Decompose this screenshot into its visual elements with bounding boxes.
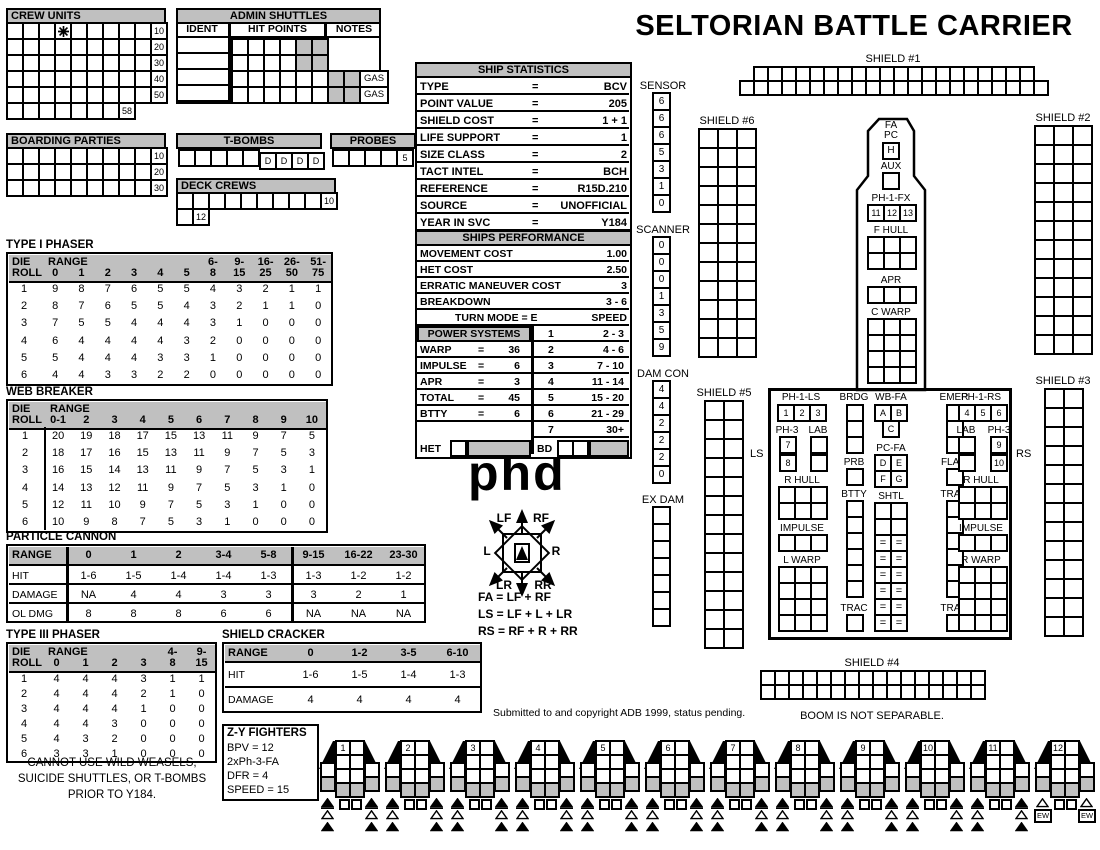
shield-3-box[interactable] xyxy=(1044,597,1065,618)
shield-3-box[interactable] xyxy=(1063,578,1084,599)
shield-6-box[interactable] xyxy=(717,204,738,225)
shield-6-box[interactable] xyxy=(698,337,719,358)
shield-5-box[interactable] xyxy=(723,419,744,440)
shield-2-box[interactable] xyxy=(1034,258,1055,279)
shield-2-box[interactable] xyxy=(1072,315,1093,336)
type3-phaser-value: 0 xyxy=(198,749,204,760)
shield-6-box[interactable] xyxy=(736,318,757,339)
type1-phaser-value: 0 xyxy=(289,318,295,329)
ph-1-fx-box[interactable]: 13 xyxy=(899,204,917,222)
shield-2-box[interactable] xyxy=(1072,239,1093,260)
r-warp-box[interactable] xyxy=(990,614,1008,632)
equals-sign: = xyxy=(532,133,538,144)
fighter-ready-box[interactable] xyxy=(676,799,687,810)
shield-6-box[interactable] xyxy=(717,337,738,358)
shield-5-box[interactable] xyxy=(704,609,725,630)
equals-sign: = xyxy=(478,377,484,388)
shield-5-box[interactable] xyxy=(723,590,744,611)
crew-count-box[interactable]: 58 xyxy=(118,102,136,120)
shield-3-box[interactable] xyxy=(1063,502,1084,523)
shield-6-box[interactable] xyxy=(717,280,738,301)
shield-3-box[interactable] xyxy=(1044,521,1065,542)
shuttle-note-box[interactable]: GAS xyxy=(359,86,389,104)
shield-6-box[interactable] xyxy=(698,242,719,263)
shield-3-box[interactable] xyxy=(1044,464,1065,485)
r-hull-box[interactable] xyxy=(810,502,828,520)
fighter-ready-box[interactable] xyxy=(664,799,675,810)
fighter-wing-box[interactable] xyxy=(385,776,401,792)
shield-6-box[interactable] xyxy=(698,223,719,244)
shield-3-box[interactable] xyxy=(1063,559,1084,580)
web-breaker-value: 8 xyxy=(111,517,117,528)
impulse-box[interactable] xyxy=(990,534,1008,552)
shield-6-box[interactable] xyxy=(736,242,757,263)
speed-turnmode: 5 xyxy=(548,393,554,404)
shield-3-box[interactable] xyxy=(1044,483,1065,504)
sc-row-label: DAMAGE xyxy=(228,695,274,706)
shield-2-box[interactable] xyxy=(1034,182,1055,203)
btty-box[interactable] xyxy=(846,580,864,598)
lab-box[interactable] xyxy=(810,436,828,454)
shield-5-box[interactable] xyxy=(704,514,725,535)
apr-box[interactable] xyxy=(899,286,917,304)
trac-box[interactable] xyxy=(846,614,864,632)
type1-phaser-value: 5 xyxy=(184,284,190,295)
shield-5-box[interactable] xyxy=(723,457,744,478)
lab-box[interactable] xyxy=(810,454,828,472)
fighter-hit-box[interactable] xyxy=(349,782,365,798)
shield-2-box[interactable] xyxy=(1034,220,1055,241)
shield-5-box[interactable] xyxy=(723,495,744,516)
web-breaker-value: 9 xyxy=(196,465,202,476)
admin-ident-cell[interactable] xyxy=(176,86,231,102)
shield-2-box[interactable] xyxy=(1053,163,1074,184)
shield-6-box[interactable] xyxy=(698,147,719,168)
pc-value: NA xyxy=(396,609,411,620)
fighter-hit-box[interactable] xyxy=(544,782,560,798)
shield-6-box[interactable] xyxy=(717,261,738,282)
fighter-wing-box[interactable] xyxy=(754,776,770,792)
shield-3-box[interactable] xyxy=(1063,407,1084,428)
het-box[interactable] xyxy=(450,440,467,457)
fighter-wing-box[interactable] xyxy=(775,776,791,792)
fighter-wing-box[interactable] xyxy=(1035,776,1051,792)
r-hull-box[interactable] xyxy=(990,502,1008,520)
boom-pc-label: PC xyxy=(884,131,898,141)
fighter-ready-box[interactable] xyxy=(534,799,545,810)
ph-3-box[interactable]: 10 xyxy=(990,454,1008,472)
fighter-hit-box[interactable] xyxy=(999,782,1015,798)
shield-2-box[interactable] xyxy=(1072,125,1093,146)
shield-5-box[interactable] xyxy=(704,476,725,497)
shield-2-box[interactable] xyxy=(1034,239,1055,260)
shield-3-box[interactable] xyxy=(1044,426,1065,447)
ph-1-rs-box[interactable]: 6 xyxy=(990,404,1008,422)
fighter-wing-box[interactable] xyxy=(494,776,510,792)
ex-dam-box[interactable] xyxy=(652,608,671,627)
shield-5-box[interactable] xyxy=(723,400,744,421)
wb-fa-box[interactable]: C xyxy=(882,420,900,438)
shield-6-box[interactable] xyxy=(736,299,757,320)
impulse-box[interactable] xyxy=(810,534,828,552)
shield-5-box[interactable] xyxy=(723,628,744,649)
dam-con-box[interactable]: 0 xyxy=(652,465,671,484)
range-col-label: 2 xyxy=(105,268,111,279)
admin-ident-cell[interactable] xyxy=(176,70,231,86)
fighter-ready-box[interactable] xyxy=(1054,799,1065,810)
shield-6-box[interactable] xyxy=(717,242,738,263)
bd-box[interactable] xyxy=(572,440,589,457)
range-col-label: 9 xyxy=(281,415,287,426)
fighter-ready-box[interactable] xyxy=(339,799,350,810)
shield-2-box[interactable] xyxy=(1053,277,1074,298)
ph-3-box[interactable]: 7 xyxy=(779,436,797,454)
power-label: WARP xyxy=(420,345,452,356)
web-breaker-value: 15 xyxy=(80,465,92,476)
shield-3-box[interactable] xyxy=(1044,616,1065,637)
shield-2-box[interactable] xyxy=(1034,163,1055,184)
shield-5-box[interactable] xyxy=(704,552,725,573)
shield-2-box[interactable] xyxy=(1072,144,1093,165)
t-bomb-d-box[interactable]: D xyxy=(307,152,325,170)
shield-5-box[interactable] xyxy=(723,476,744,497)
shield-cracker-title: SHIELD CRACKER xyxy=(222,630,325,642)
speed-col-header: SPEED xyxy=(591,313,627,324)
fighter-ready-box[interactable] xyxy=(741,799,752,810)
shield-6-box[interactable] xyxy=(717,166,738,187)
fighter-drone-icon xyxy=(841,820,854,838)
shield-6-box[interactable] xyxy=(717,299,738,320)
type1-phaser-value: 4 xyxy=(78,353,84,364)
fighter-ready-box[interactable] xyxy=(611,799,622,810)
shield-6-box[interactable] xyxy=(717,147,738,168)
f-hull-box[interactable] xyxy=(899,252,917,270)
fighter-hit-box[interactable] xyxy=(674,782,690,798)
fighter-wing-box[interactable] xyxy=(515,776,531,792)
zy-fighters-line: SPEED = 15 xyxy=(227,785,289,796)
shield-5-box[interactable] xyxy=(704,628,725,649)
shield-2-box[interactable] xyxy=(1034,334,1055,355)
ph-3-box[interactable]: 9 xyxy=(990,436,1008,454)
fighter-wing-box[interactable] xyxy=(429,776,445,792)
power-label: BTTY xyxy=(420,409,447,420)
fighter-wing-box[interactable] xyxy=(645,776,661,792)
fighter-hit-box[interactable] xyxy=(739,782,755,798)
shield-6-box[interactable] xyxy=(736,204,757,225)
shield-3-box[interactable] xyxy=(1044,559,1065,580)
fighter-wing-box[interactable] xyxy=(450,776,466,792)
fighter-ready-box[interactable] xyxy=(859,799,870,810)
shield-6-box[interactable] xyxy=(736,185,757,206)
fighter-ready-box[interactable] xyxy=(1001,799,1012,810)
shield-2-box[interactable] xyxy=(1053,125,1074,146)
scanner-box[interactable]: 9 xyxy=(652,338,671,357)
zy-fighters-title: Z-Y FIGHTERS xyxy=(227,728,307,740)
shield-5-box[interactable] xyxy=(704,400,725,421)
shield-2-box[interactable] xyxy=(1034,277,1055,298)
range-col-label: 0 xyxy=(53,658,59,669)
shield-6-box[interactable] xyxy=(698,204,719,225)
fighter-ew-box[interactable]: EW xyxy=(1034,809,1052,823)
bd-label: BD xyxy=(537,444,552,455)
deck-crew-count-box[interactable]: 12 xyxy=(192,208,210,226)
shield-2-box[interactable] xyxy=(1053,315,1074,336)
fighter-wing-box[interactable] xyxy=(559,776,575,792)
shield-2-box[interactable] xyxy=(1053,182,1074,203)
type1-phaser-value: 0 xyxy=(289,336,295,347)
fighter-wing-box[interactable] xyxy=(1079,776,1095,792)
shield-3-box[interactable] xyxy=(1063,426,1084,447)
fighter-wing-box[interactable] xyxy=(949,776,965,792)
fighter-wing-box[interactable] xyxy=(580,776,596,792)
shield-2-box[interactable] xyxy=(1072,182,1093,203)
shield-3-box[interactable] xyxy=(1063,597,1084,618)
sensor-box[interactable]: 0 xyxy=(652,194,671,213)
type3-phaser-value: 0 xyxy=(140,734,146,745)
die-roll-value: 5 xyxy=(21,353,27,364)
fighter-hit-box[interactable] xyxy=(1064,782,1080,798)
shield-5-box[interactable] xyxy=(704,571,725,592)
fighter-hit-box[interactable] xyxy=(869,782,885,798)
shield-2-box[interactable] xyxy=(1072,220,1093,241)
shield-3-box[interactable] xyxy=(1063,521,1084,542)
web-breaker-value: 7 xyxy=(281,431,287,442)
fighter-wing-box[interactable] xyxy=(624,776,640,792)
restriction-note: SUICIDE SHUTTLES, OR T-BOMBS xyxy=(18,774,206,786)
shield-2-box[interactable] xyxy=(1053,144,1074,165)
shield-2-box[interactable] xyxy=(1034,125,1055,146)
fighter-ready-box[interactable] xyxy=(404,799,415,810)
shield-2-box[interactable] xyxy=(1053,296,1074,317)
fighter-ready-box[interactable] xyxy=(481,799,492,810)
fighter-drone-icon xyxy=(971,820,984,838)
fighter-ready-box[interactable] xyxy=(1066,799,1077,810)
shield-6-box[interactable] xyxy=(717,185,738,206)
type1-phaser-value: 0 xyxy=(262,318,268,329)
aux-box[interactable] xyxy=(882,172,900,190)
shield-3-box[interactable] xyxy=(1044,540,1065,561)
shield-5-box[interactable] xyxy=(723,514,744,535)
fighter-ready-box[interactable] xyxy=(794,799,805,810)
c-warp-box[interactable] xyxy=(899,366,917,384)
fighter-wing-box[interactable] xyxy=(320,776,336,792)
stat-value: R15D.210 xyxy=(577,184,627,195)
type1-phaser-value: 4 xyxy=(131,336,137,347)
shield-6-box[interactable] xyxy=(717,128,738,149)
shield-3-box[interactable] xyxy=(1044,578,1065,599)
shield-5-box[interactable] xyxy=(704,590,725,611)
fighter-ready-box[interactable] xyxy=(546,799,557,810)
web-breaker-value: 3 xyxy=(281,465,287,476)
admin-ident-cell[interactable] xyxy=(176,54,231,70)
shield-5-box[interactable] xyxy=(704,438,725,459)
shield-2-box[interactable] xyxy=(1034,144,1055,165)
die-roll-value: 4 xyxy=(22,483,28,494)
fighter-wing-box[interactable] xyxy=(1014,776,1030,792)
pc-label-divider xyxy=(66,547,69,621)
lab-box[interactable] xyxy=(958,436,976,454)
fighter-wing-box[interactable] xyxy=(905,776,921,792)
fighter-wing-box[interactable] xyxy=(884,776,900,792)
shield-3-box[interactable] xyxy=(1063,445,1084,466)
pc-range-label: 3-4 xyxy=(216,550,232,561)
shield-2-box[interactable] xyxy=(1072,277,1093,298)
shield-6-box[interactable] xyxy=(736,337,757,358)
fighter-ready-box[interactable] xyxy=(924,799,935,810)
type3-phaser-value: 0 xyxy=(198,689,204,700)
bd-gray-box[interactable] xyxy=(589,440,629,457)
shield-5-box[interactable] xyxy=(704,457,725,478)
fighter-hit-box[interactable] xyxy=(934,782,950,798)
het-gray-box[interactable] xyxy=(467,440,531,457)
lab-box[interactable] xyxy=(958,454,976,472)
shield-2-box[interactable] xyxy=(1053,258,1074,279)
admin-ident-cell[interactable] xyxy=(176,38,231,54)
shield-6-box[interactable] xyxy=(698,166,719,187)
shield-2-box[interactable] xyxy=(1072,201,1093,222)
ph-1-ls-box[interactable]: 3 xyxy=(809,404,827,422)
fighter-ready-box[interactable] xyxy=(936,799,947,810)
shield-3-box[interactable] xyxy=(1063,616,1084,637)
shield-6-box[interactable] xyxy=(698,261,719,282)
shield-2-box[interactable] xyxy=(1034,296,1055,317)
dam-con-label: DAM CON xyxy=(637,369,689,380)
type3-phaser-value: 4 xyxy=(53,704,59,715)
shield-5-box[interactable] xyxy=(704,533,725,554)
pc-value: 4 xyxy=(130,590,136,601)
fighter-wing-box[interactable] xyxy=(840,776,856,792)
pc-value: 6 xyxy=(220,609,226,620)
fighter-wing-box[interactable] xyxy=(710,776,726,792)
web-breaker-value: 9 xyxy=(83,517,89,528)
prb-box[interactable] xyxy=(846,468,864,486)
shield-5-box[interactable] xyxy=(723,609,744,630)
fighter-hit-box[interactable] xyxy=(414,782,430,798)
type1-phaser-value: 0 xyxy=(315,336,321,347)
r-warp-label: R WARP xyxy=(961,556,1001,566)
speed-turnmode: 3 xyxy=(548,361,554,372)
shtl-box[interactable]: = xyxy=(890,614,908,632)
fighter-drone-icon xyxy=(581,820,594,838)
shield-1-box[interactable] xyxy=(1033,80,1049,96)
shield-6-box[interactable] xyxy=(698,280,719,301)
deck-crew-count-box[interactable]: 10 xyxy=(320,192,338,210)
web-breaker-value: 1 xyxy=(252,500,258,511)
probe-count-box[interactable]: 5 xyxy=(396,149,414,167)
shield-2-box[interactable] xyxy=(1072,334,1093,355)
ph-3-box[interactable]: 8 xyxy=(779,454,797,472)
shield-2-box[interactable] xyxy=(1053,239,1074,260)
shield-6-box[interactable] xyxy=(717,318,738,339)
t-bomb-box[interactable] xyxy=(242,149,260,167)
boarding-count-box[interactable]: 30 xyxy=(150,179,168,197)
probes-header: PROBES xyxy=(330,133,416,149)
fighter-ready-box[interactable] xyxy=(469,799,480,810)
shield-2-box[interactable] xyxy=(1053,201,1074,222)
shield-3-box[interactable] xyxy=(1063,388,1084,409)
shield-5-box[interactable] xyxy=(704,495,725,516)
shield-2-box[interactable] xyxy=(1072,163,1093,184)
shield-6-box[interactable] xyxy=(698,299,719,320)
shield-3-box[interactable] xyxy=(1063,483,1084,504)
shield-2-box[interactable] xyxy=(1053,220,1074,241)
type1-phaser-value: 7 xyxy=(105,284,111,295)
shield-2-box[interactable] xyxy=(1034,315,1055,336)
shield-6-box[interactable] xyxy=(736,261,757,282)
shield-4-box[interactable] xyxy=(970,684,986,700)
shield-2-box[interactable] xyxy=(1072,296,1093,317)
shield-3-box[interactable] xyxy=(1044,388,1065,409)
pc-value: 3 xyxy=(220,590,226,601)
shield-6-box[interactable] xyxy=(736,147,757,168)
pc-row-label: RANGE xyxy=(12,550,52,561)
fighter-ew-box[interactable]: EW xyxy=(1078,809,1096,823)
shield-2-label: SHIELD #2 xyxy=(1035,113,1090,124)
shield-6-box[interactable] xyxy=(736,223,757,244)
shield-6-box[interactable] xyxy=(736,280,757,301)
fighter-wing-box[interactable] xyxy=(364,776,380,792)
fighter-ready-box[interactable] xyxy=(729,799,740,810)
shield-5-box[interactable] xyxy=(723,571,744,592)
shield-2-box[interactable] xyxy=(1034,201,1055,222)
fighter-ready-box[interactable] xyxy=(351,799,362,810)
fighter-wing-box[interactable] xyxy=(970,776,986,792)
fighter-hit-box[interactable] xyxy=(479,782,495,798)
brdg-box[interactable] xyxy=(846,436,864,454)
fighter-wing-box[interactable] xyxy=(819,776,835,792)
l-warp-box[interactable] xyxy=(810,614,828,632)
fighter-ready-box[interactable] xyxy=(989,799,1000,810)
fighter-hit-box[interactable] xyxy=(804,782,820,798)
shield-6-box[interactable] xyxy=(698,128,719,149)
shield-6-box[interactable] xyxy=(698,318,719,339)
type3-phaser-value: 1 xyxy=(140,704,146,715)
ssd-sheet: SELTORIAN BATTLE CARRIER phd Submitted t… xyxy=(0,0,1100,850)
shield-3-box[interactable] xyxy=(1063,540,1084,561)
arc-label-r: R xyxy=(552,545,561,557)
shield-2-box[interactable] xyxy=(1053,334,1074,355)
shield-5-box[interactable] xyxy=(704,419,725,440)
shield-6-label: SHIELD #6 xyxy=(699,116,754,127)
shield-2-box[interactable] xyxy=(1072,258,1093,279)
fighter-hit-box[interactable] xyxy=(609,782,625,798)
fighter-drone-icon xyxy=(906,820,919,838)
shield-5-box[interactable] xyxy=(723,533,744,554)
shield-3-box[interactable] xyxy=(1044,445,1065,466)
web-breaker-value: 9 xyxy=(224,448,230,459)
type3-phaser-value: 0 xyxy=(169,734,175,745)
pc-hellbore-box[interactable]: H xyxy=(882,142,900,160)
shield-3-box[interactable] xyxy=(1044,407,1065,428)
fighter-ready-box[interactable] xyxy=(806,799,817,810)
shield-3-box[interactable] xyxy=(1044,502,1065,523)
equals-sign: = xyxy=(532,82,538,93)
shield-6-box[interactable] xyxy=(736,128,757,149)
shield-5-box[interactable] xyxy=(723,438,744,459)
fighter-ready-box[interactable] xyxy=(871,799,882,810)
shield-6-box[interactable] xyxy=(717,223,738,244)
shield-6-box[interactable] xyxy=(698,185,719,206)
pc-fa-box[interactable]: G xyxy=(890,470,908,488)
crew-count-box[interactable]: 50 xyxy=(150,86,168,104)
fighter-wing-box[interactable] xyxy=(689,776,705,792)
shield-3-box[interactable] xyxy=(1063,464,1084,485)
boom-note: BOOM IS NOT SEPARABLE. xyxy=(800,710,944,722)
fighter-ready-box[interactable] xyxy=(416,799,427,810)
shield-6-box[interactable] xyxy=(736,166,757,187)
shield-5-box[interactable] xyxy=(723,552,744,573)
fighter-ready-box[interactable] xyxy=(599,799,610,810)
